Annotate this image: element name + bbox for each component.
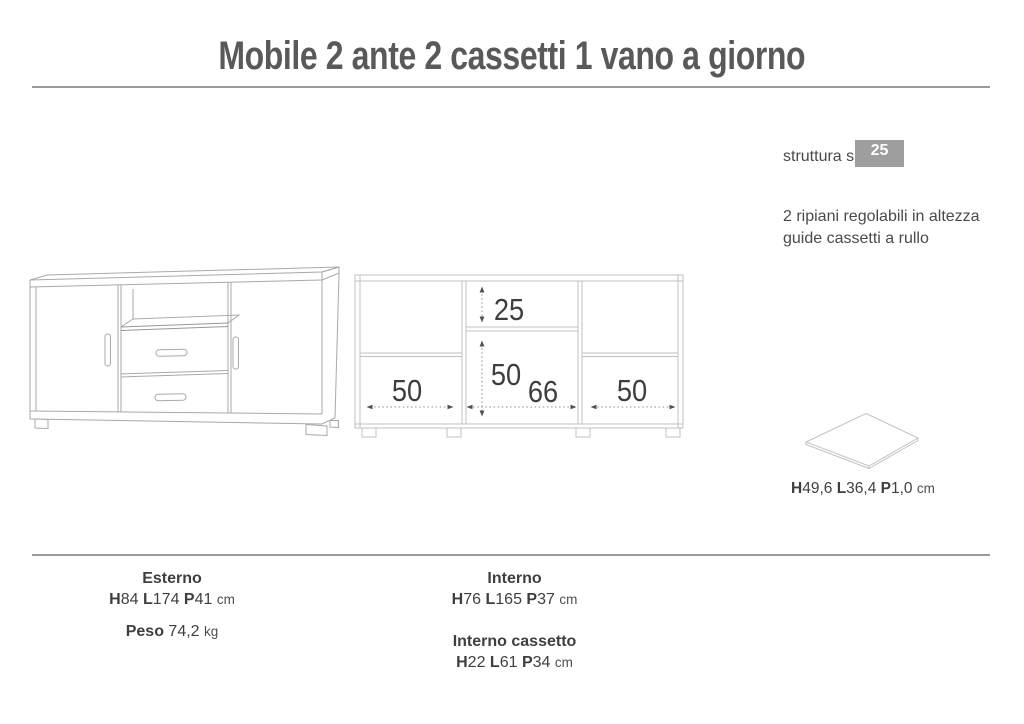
interno-title: Interno: [412, 569, 617, 588]
door-handle-left: [105, 334, 111, 366]
dim-label-left-width: 50: [389, 375, 424, 406]
dim-label-drawers-height: 50: [488, 359, 523, 390]
cassetto-title: Interno cassetto: [412, 632, 617, 651]
page-title-text: Mobile 2 ante 2 cassetti 1 vano a giorno: [219, 34, 806, 79]
shelf-panel-drawing: [806, 414, 918, 469]
cabinet-feet: [35, 419, 339, 436]
front-view-feet: [362, 428, 680, 437]
door-handle-right: [233, 337, 239, 369]
esterno-section: Esterno H84 L174 P41 cm Peso 74,2 kg: [72, 569, 272, 641]
peso-row: Peso 74,2 kg: [72, 622, 272, 641]
esterno-dims: H84 L174 P41 cm: [72, 590, 272, 609]
note-line-1: 2 ripiani regolabili in altezza: [783, 206, 980, 228]
title-rule: [32, 86, 990, 88]
cassetto-dims: H22 L61 P34 cm: [412, 653, 617, 672]
shelf-panel-dims: H49,6 L36,4 P1,0 cm: [791, 480, 933, 498]
dim-label-vano-height: 25: [491, 294, 526, 325]
cabinet-perspective-drawing: [30, 267, 339, 436]
interno-dims: H76 L165 P37 cm: [412, 590, 617, 609]
specs-divider-rule: [32, 554, 990, 556]
dim-label-middle-width: 66: [525, 376, 560, 407]
spec-sheet-page: Mobile 2 ante 2 cassetti 1 vano a giorno: [0, 0, 1024, 724]
interno-section: Interno H76 L165 P37 cm Interno cassetto…: [412, 569, 617, 672]
struttura-thickness-badge: 25 mm: [855, 140, 904, 167]
page-title: Mobile 2 ante 2 cassetti 1 vano a giorno: [0, 34, 1024, 79]
note-line-2: guide cassetti a rullo: [783, 228, 980, 250]
esterno-title: Esterno: [72, 569, 272, 588]
features-note: 2 ripiani regolabili in altezza guide ca…: [783, 206, 980, 250]
dim-label-right-width: 50: [614, 375, 649, 406]
drawer-handles: [155, 349, 187, 401]
